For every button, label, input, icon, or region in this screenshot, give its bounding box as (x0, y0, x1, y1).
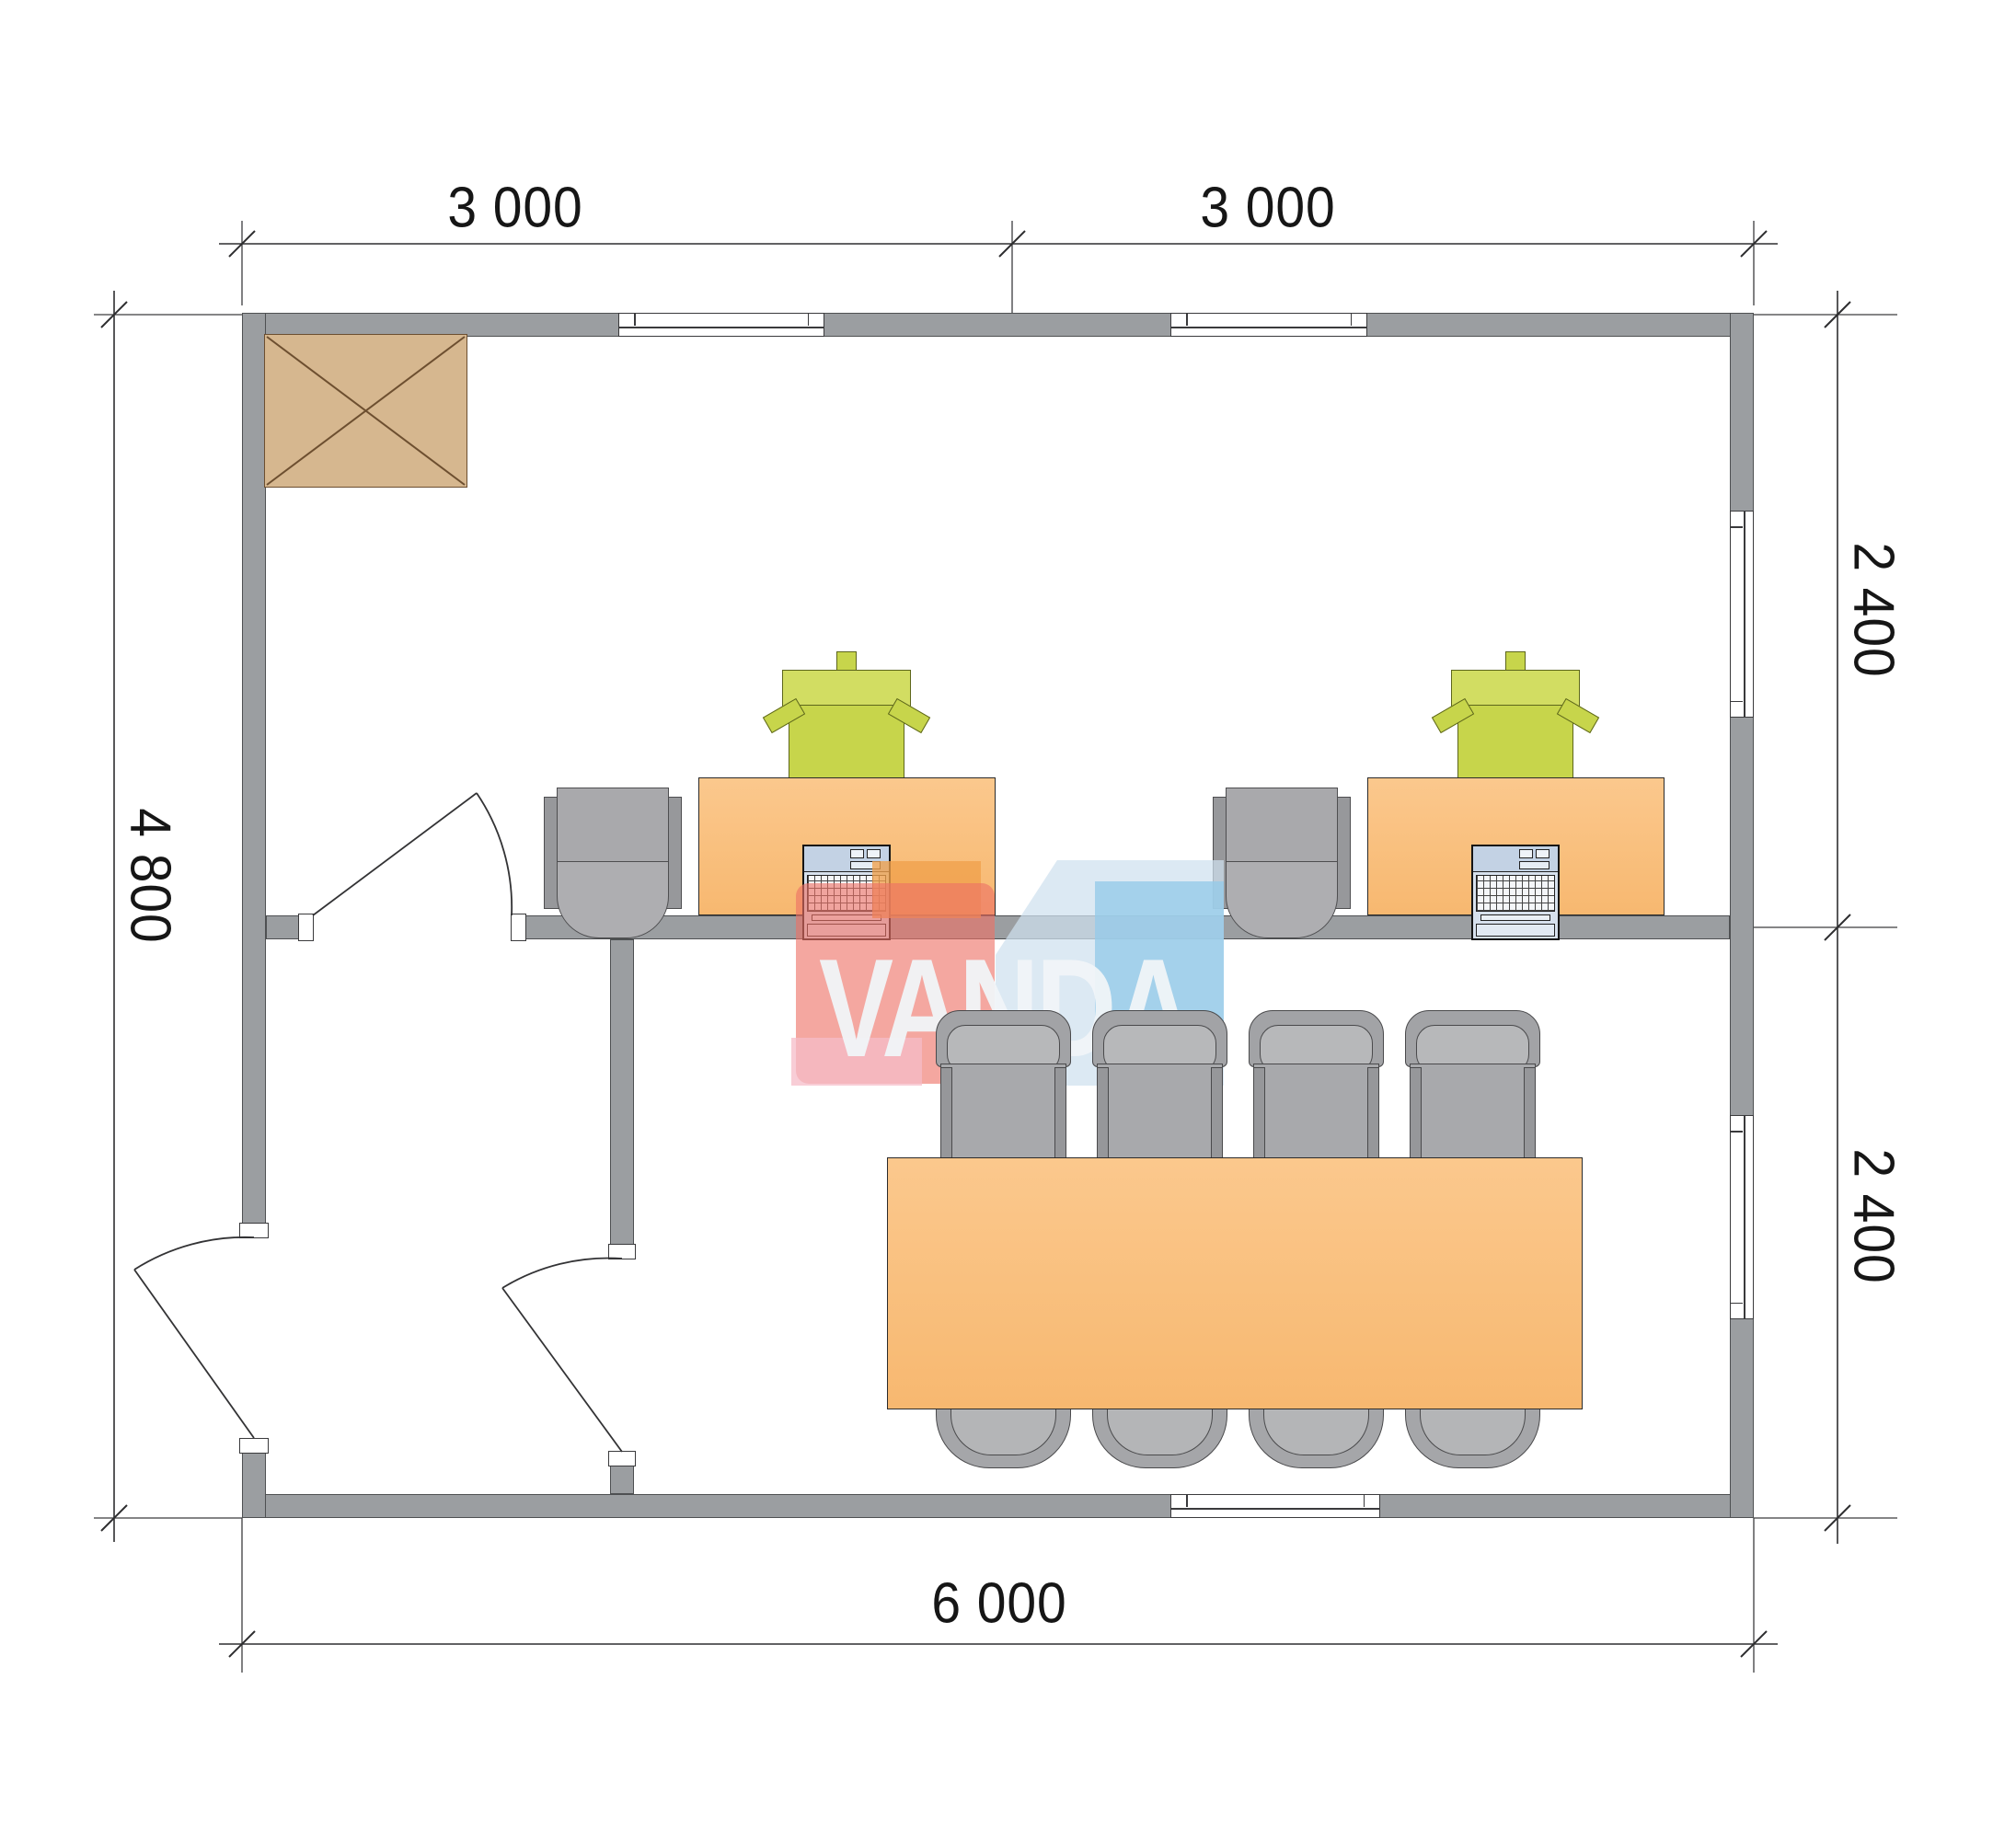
dim-label-bottom: 6 000 (931, 1571, 1066, 1637)
extension-lines (94, 221, 1897, 1673)
dimension-lines (114, 244, 1837, 1644)
door-leaf-meeting (502, 1288, 622, 1452)
door-arc-entrance (134, 1237, 254, 1270)
door-arc-meeting (502, 1259, 622, 1288)
dim-label-top-left: 3 000 (447, 176, 582, 241)
door-leaf-entrance (134, 1270, 254, 1438)
dimension-and-door-linework (0, 0, 2016, 1840)
floor-plan: VANDA (0, 0, 2016, 1840)
door-leaf-office (313, 793, 477, 915)
dim-label-top-right: 3 000 (1200, 176, 1335, 241)
door-swings (134, 793, 622, 1452)
cabinet-cross-icon (267, 337, 465, 485)
dim-label-right-top: 2 400 (1841, 542, 1907, 677)
door-arc-office (477, 793, 512, 915)
dim-label-left: 4 800 (118, 808, 183, 943)
dim-label-right-bottom: 2 400 (1841, 1148, 1907, 1283)
dimension-ticks (101, 231, 1850, 1657)
